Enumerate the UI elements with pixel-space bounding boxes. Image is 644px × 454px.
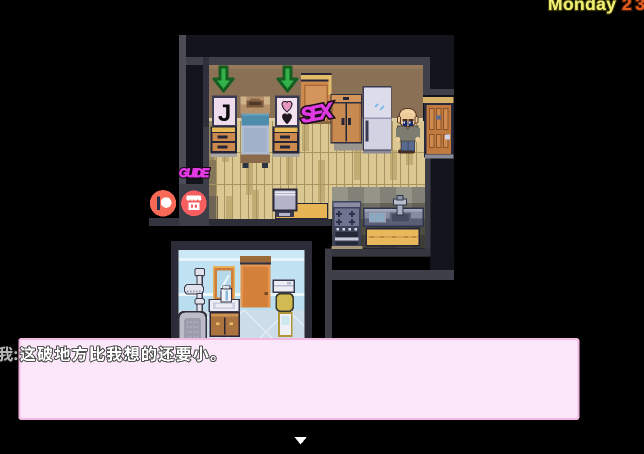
svg-text:Monday: Monday xyxy=(548,0,617,14)
svg-text:GUIDE: GUIDE xyxy=(179,168,209,180)
svg-text:J: J xyxy=(218,100,231,127)
